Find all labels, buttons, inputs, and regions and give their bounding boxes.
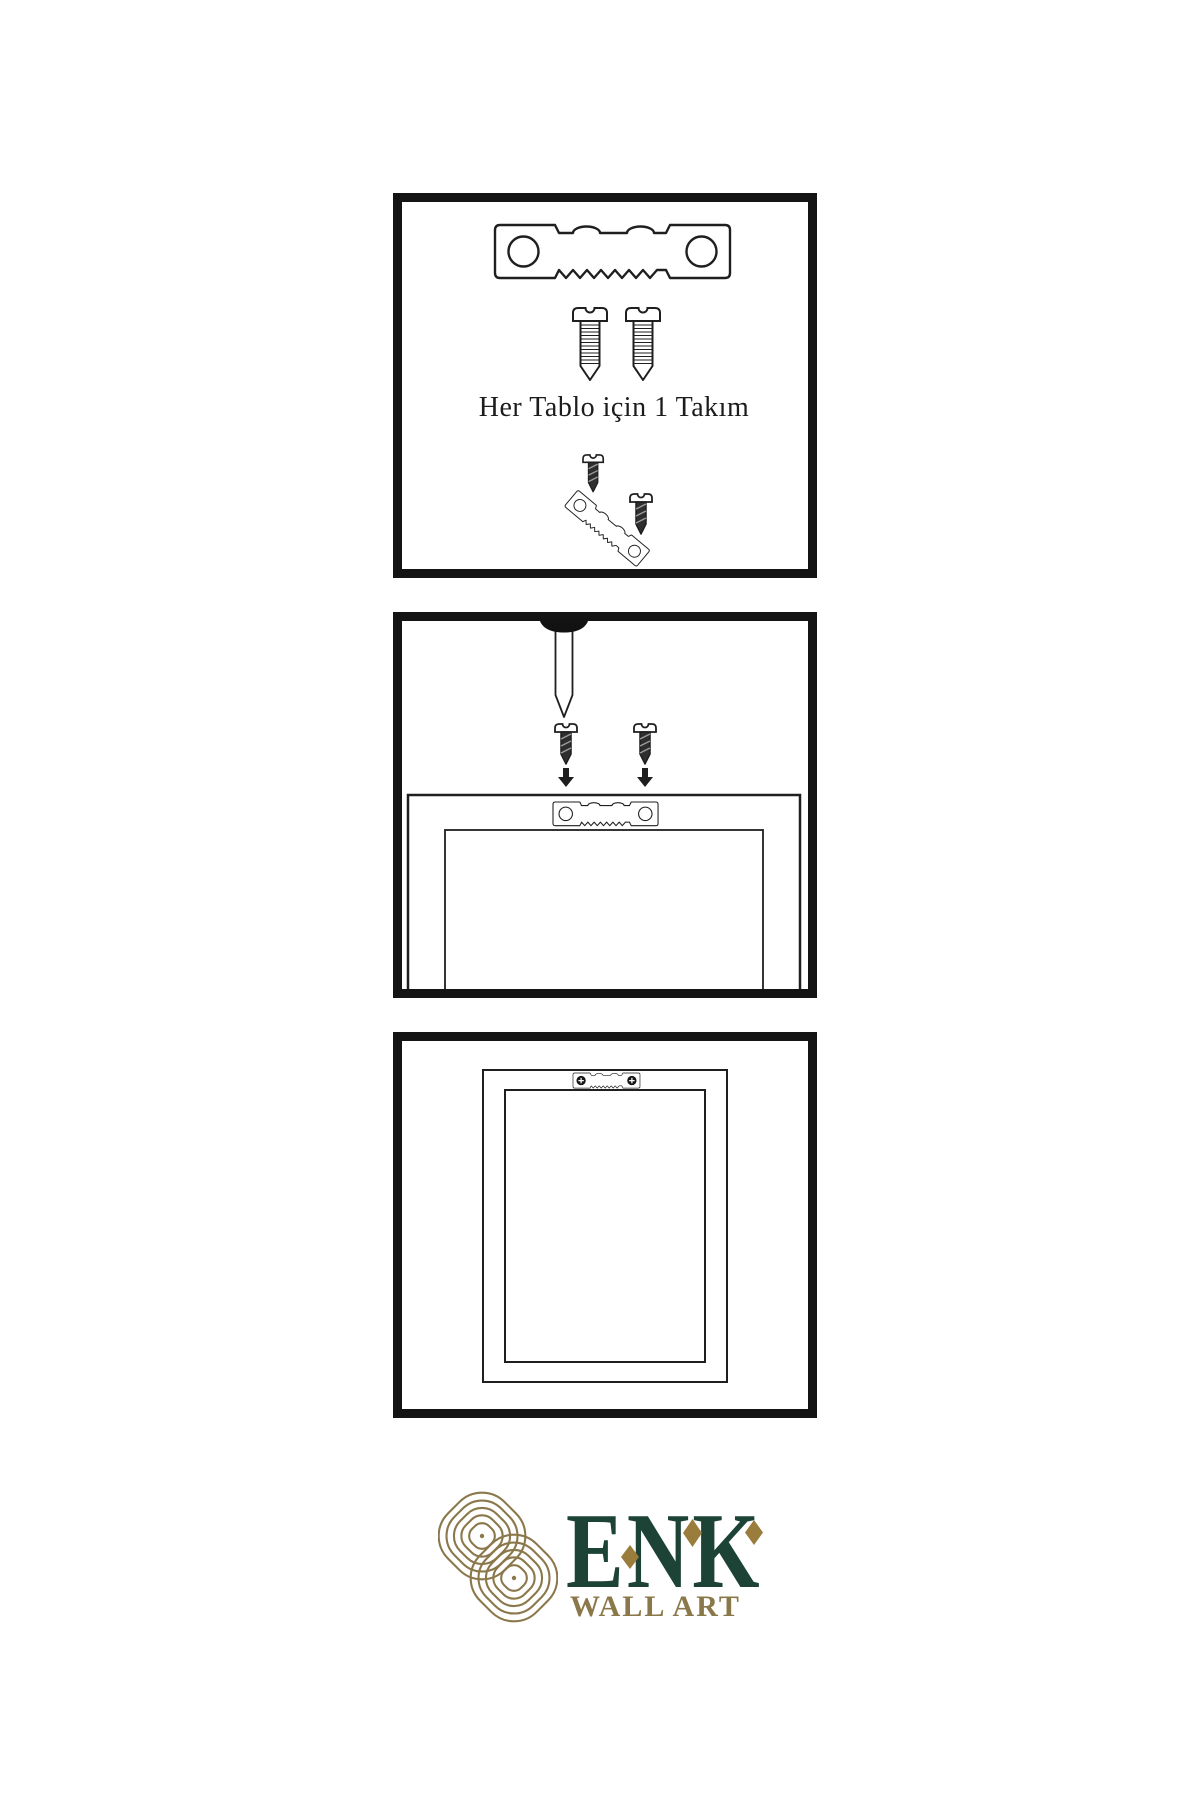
mounting-screw-icon [626, 308, 660, 380]
hung-frame-inner-outline [505, 1090, 705, 1362]
step-2-illustration [402, 621, 808, 989]
mounting-screw-icon [573, 308, 607, 380]
dark-screw-icon [555, 724, 577, 764]
sawtooth-hanger-icon [553, 802, 658, 826]
step-2-panel [393, 612, 817, 998]
phillips-screw-head-icon [577, 1076, 586, 1085]
kit-caption: Her Tablo için 1 Takım [402, 392, 808, 424]
wall-nail-icon [540, 621, 588, 717]
phillips-screw-head-icon [627, 1076, 636, 1085]
dark-screw-icon [634, 724, 656, 764]
step-3-panel [393, 1032, 817, 1418]
down-arrow-icon [558, 768, 574, 787]
brand-subtitle: WALL ART [570, 1592, 741, 1622]
sawtooth-hanger-icon [495, 225, 730, 278]
instruction-sheet: Her Tablo için 1 Takım [0, 0, 1200, 1800]
frame-inner-outline [445, 830, 763, 989]
step-1-panel: Her Tablo için 1 Takım [393, 193, 817, 578]
small-dark-screw-icon [583, 455, 603, 492]
down-arrow-icon [637, 768, 653, 787]
step-1-illustration [402, 202, 808, 569]
step-3-illustration [402, 1041, 808, 1409]
dark-screw-icon [630, 494, 652, 534]
brand-knot-icon [438, 1484, 558, 1630]
